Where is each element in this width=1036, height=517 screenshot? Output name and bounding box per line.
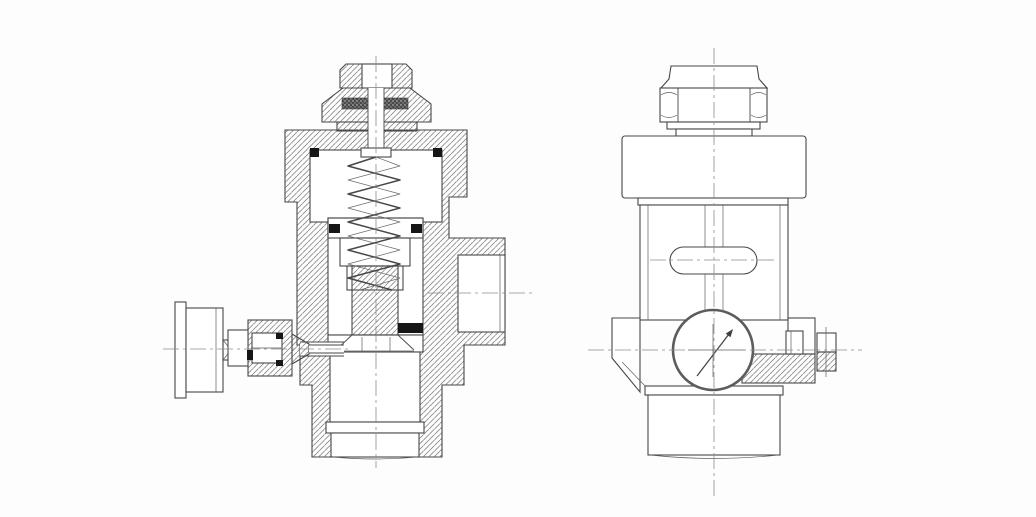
- side-fitting-bottom: [817, 352, 836, 371]
- side-fitting-top: [817, 333, 836, 352]
- gauge-spool: [228, 330, 248, 366]
- bolt-core: [362, 64, 392, 88]
- sectional-view: [163, 56, 533, 468]
- gauge-knob-body: [186, 308, 223, 392]
- fitting-seal-top: [276, 333, 283, 339]
- nut-flange: [667, 122, 760, 129]
- piston-o-ring-left: [329, 224, 340, 233]
- piston-stem-column: [352, 266, 398, 335]
- slot-window: [670, 247, 757, 274]
- piston-o-ring-right: [411, 224, 422, 233]
- o-ring-upper-left: [310, 148, 319, 157]
- valve-technical-drawing: [0, 0, 1036, 517]
- bottom-chamber: [330, 352, 420, 422]
- gauge-knob-backplate: [175, 302, 186, 398]
- fitting-seal-mid: [247, 350, 253, 360]
- band-step: [638, 198, 788, 205]
- fitting-seal-bottom: [276, 360, 283, 366]
- gauge-boss: [786, 331, 803, 354]
- bottom-port-plug: [331, 433, 419, 457]
- side-outlet-bore: [458, 255, 505, 332]
- left-wing: [612, 318, 640, 392]
- drawing-canvas: [0, 0, 1036, 517]
- seat-seal-ring: [398, 323, 423, 333]
- hex-nut: [660, 88, 767, 122]
- plug-retaining-band: [326, 422, 424, 433]
- o-ring-upper-right: [433, 148, 442, 157]
- side-elevation-view: [588, 48, 862, 500]
